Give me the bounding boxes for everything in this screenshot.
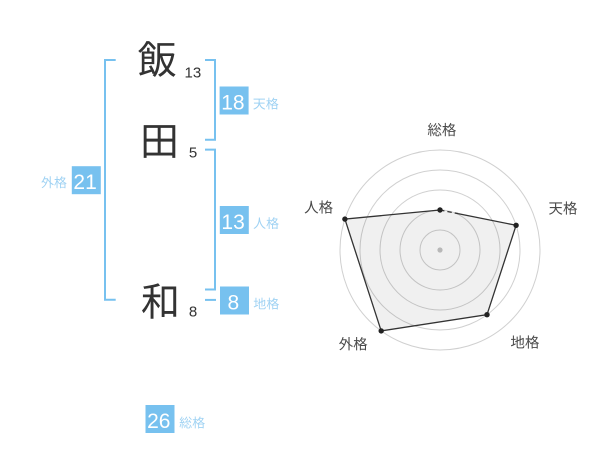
svg-text:8: 8 [189, 304, 197, 321]
svg-text:26: 26 [147, 410, 170, 433]
svg-text:5: 5 [189, 144, 197, 161]
svg-text:8: 8 [227, 291, 239, 314]
svg-text:13: 13 [221, 211, 244, 234]
svg-text:21: 21 [73, 171, 96, 194]
svg-text:18: 18 [221, 91, 244, 114]
svg-text:13: 13 [185, 65, 202, 82]
